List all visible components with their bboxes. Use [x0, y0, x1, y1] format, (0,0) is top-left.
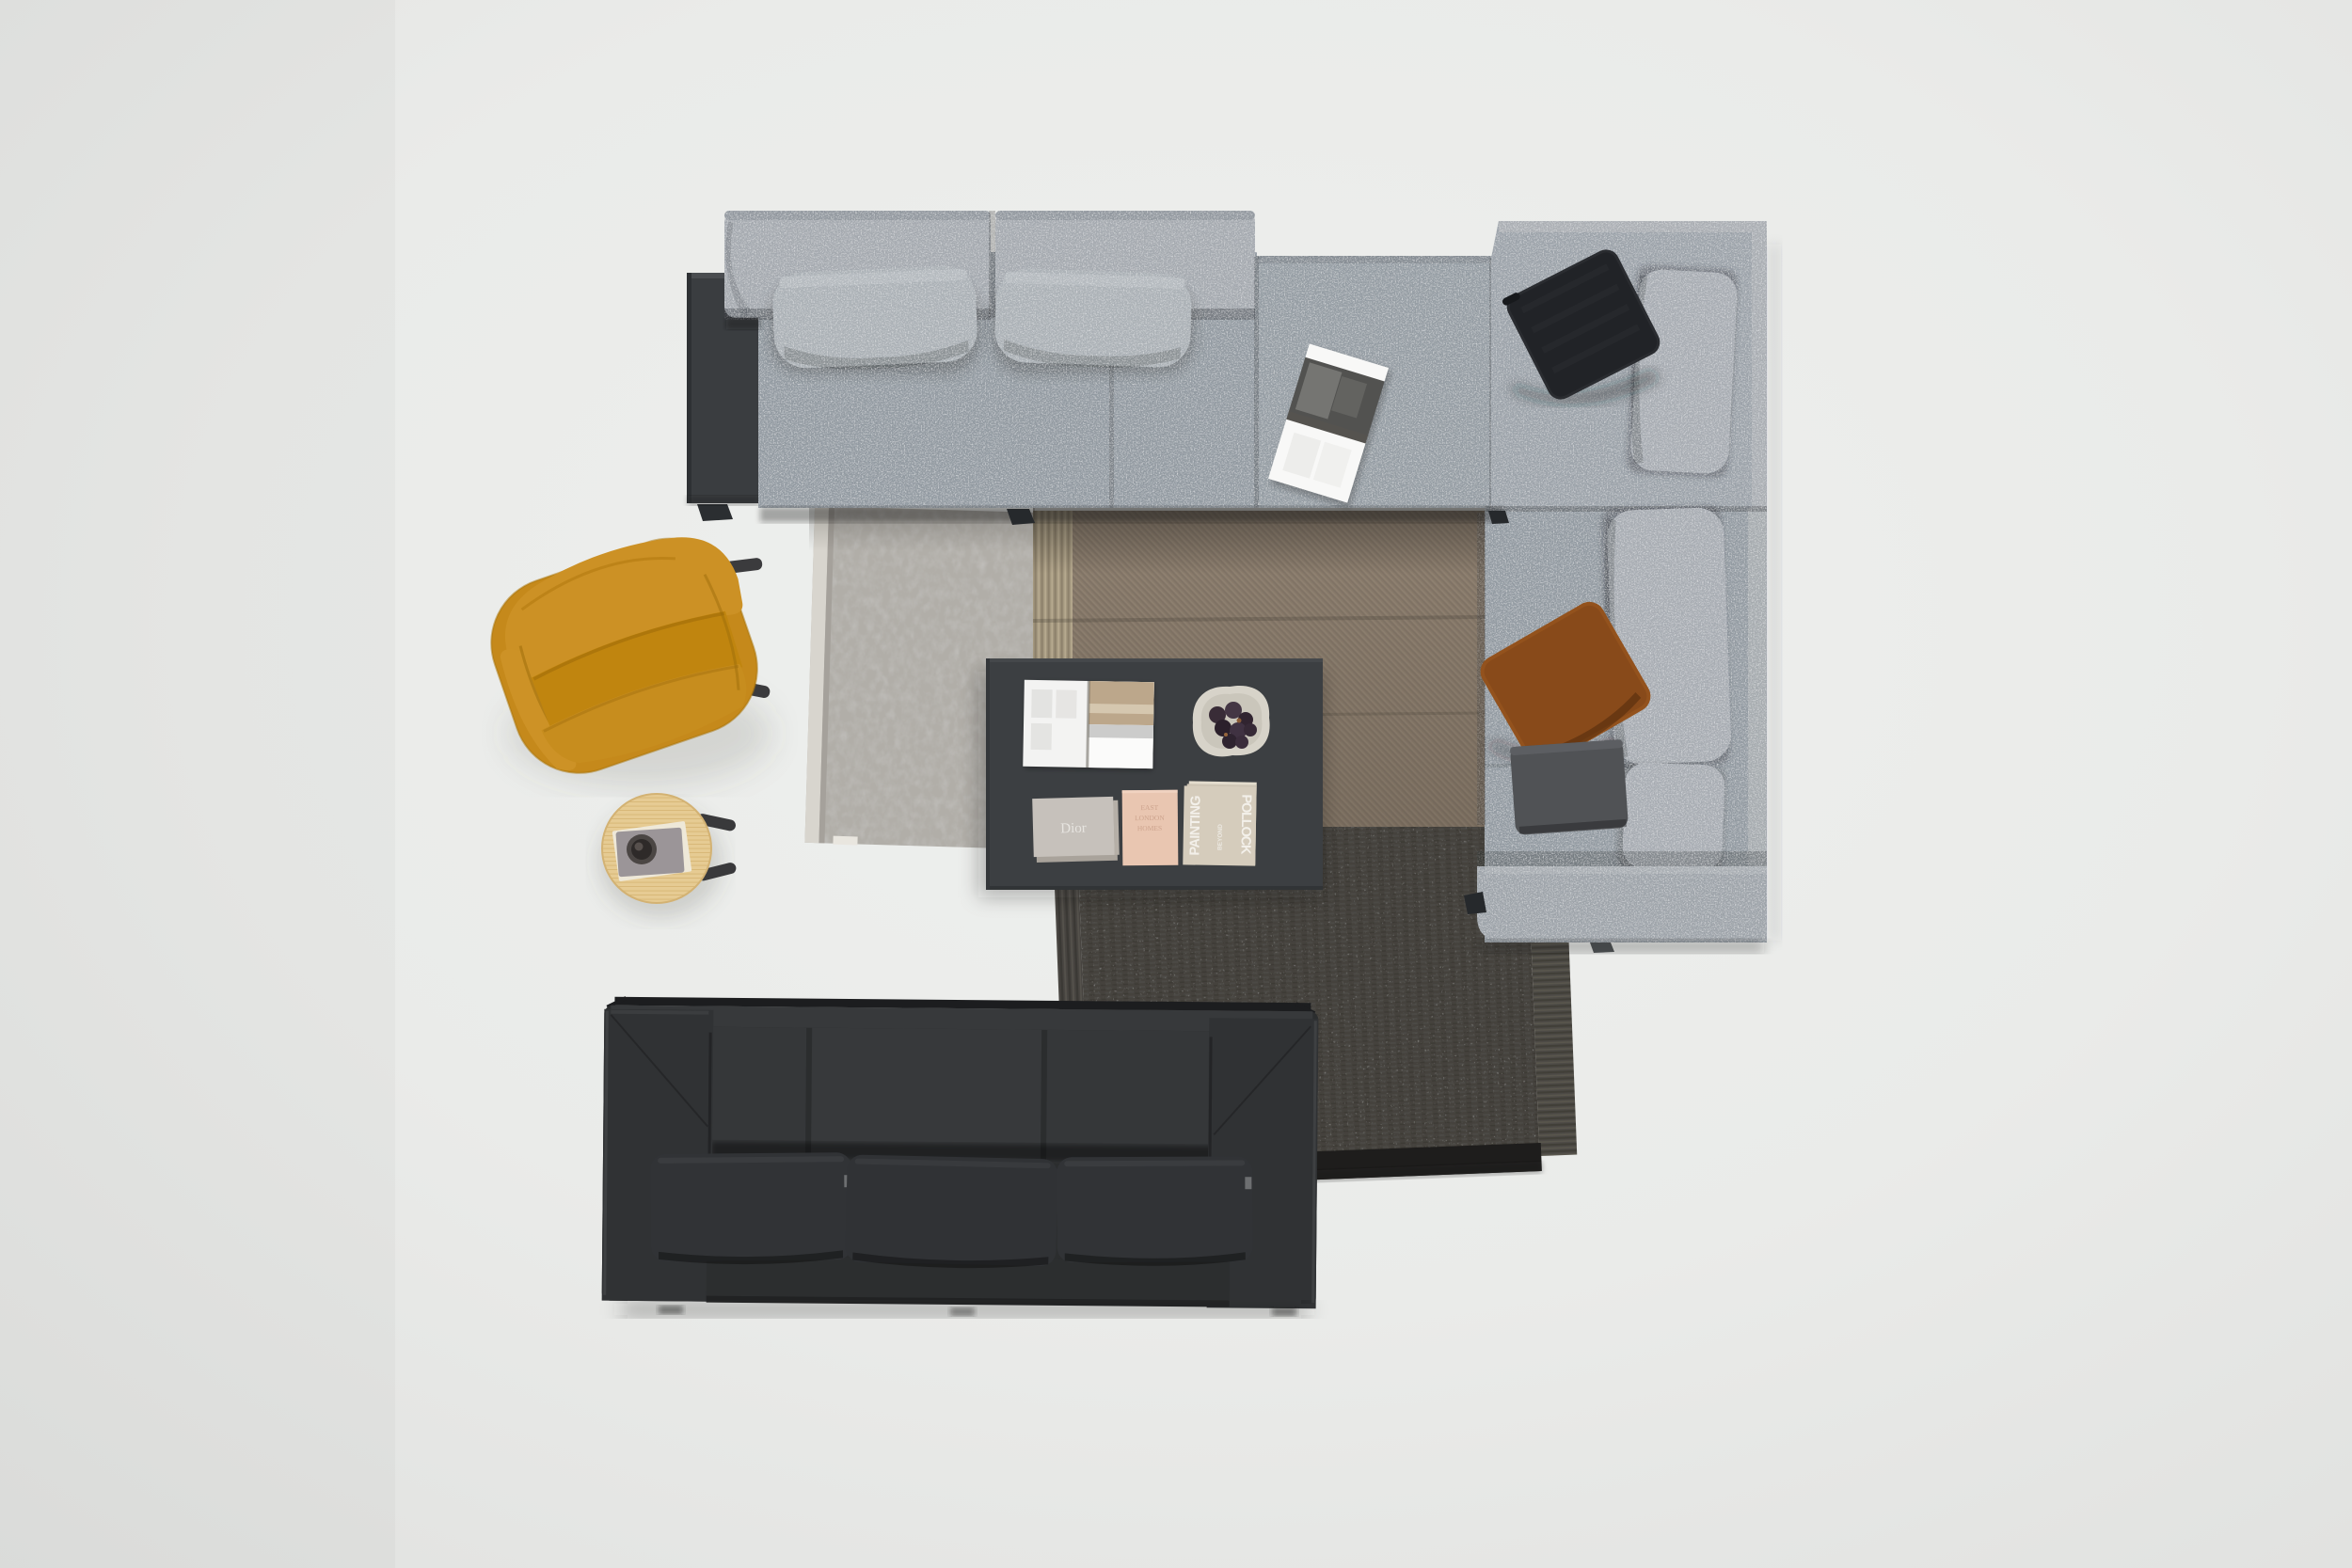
svg-text:EAST: EAST [1140, 803, 1158, 812]
svg-text:PAINTING: PAINTING [1187, 795, 1203, 855]
svg-text:Dior: Dior [1060, 821, 1087, 837]
svg-text:LONDON: LONDON [1135, 814, 1165, 822]
svg-text:HOMES: HOMES [1137, 824, 1162, 832]
svg-text:POLLOCK: POLLOCK [1237, 794, 1253, 855]
svg-text:BEYOND: BEYOND [1217, 824, 1224, 850]
